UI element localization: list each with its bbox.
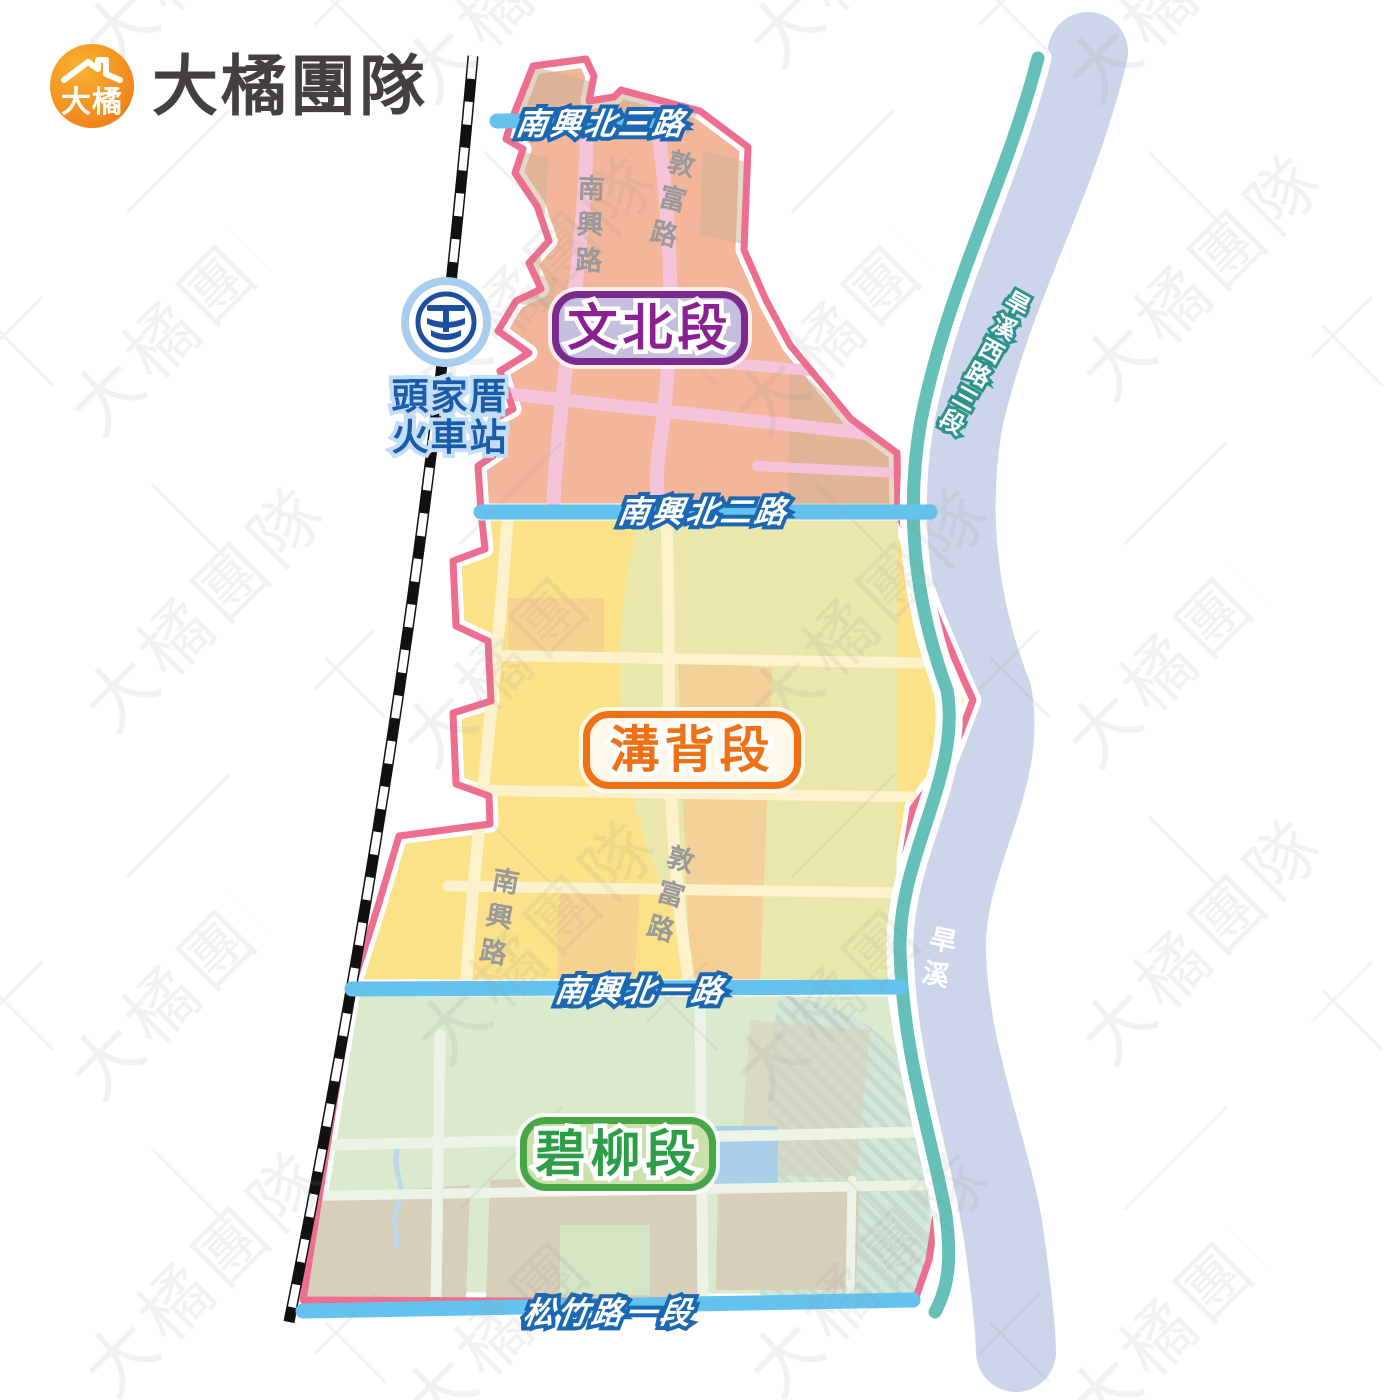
- street-label-nanxing-north: 南興路: [567, 173, 610, 282]
- watermark-layer: [0, 0, 1400, 1400]
- brand-team-name: 大橘團隊: [152, 53, 428, 119]
- section-badge-wenbei: 文北段文北段: [552, 291, 748, 365]
- brand-logo: 大橘 大橘團隊: [50, 44, 428, 128]
- section-label-biliu: 碧柳段碧柳段: [536, 1129, 701, 1179]
- section-badge-goubei: 溝背段溝背段: [583, 711, 801, 789]
- station-name-line2: 火車站火車站: [392, 407, 509, 461]
- map-page: 大橘團隊 大橘團隊: [0, 0, 1400, 1400]
- district-map: 大橘團隊 大橘團隊: [0, 0, 1400, 1400]
- road-label-nanxing-north-2: 南興北二路南興北二路: [616, 487, 792, 532]
- brand-badge-text: 大橘: [61, 88, 123, 118]
- road-label-nanxing-north-1: 南興北一路南興北一路: [553, 966, 729, 1011]
- house-roof-icon: [60, 54, 124, 84]
- section-badge-biliu: 碧柳段碧柳段: [520, 1117, 716, 1191]
- section-label-wenbei: 文北段文北段: [568, 303, 733, 353]
- train-station-icon: [400, 276, 492, 368]
- section-label-goubei: 溝背段溝背段: [610, 725, 775, 775]
- road-label-nanxing-north-3: 南興北三路南興北三路: [514, 99, 690, 144]
- brand-logo-badge: 大橘: [50, 44, 134, 128]
- road-label-songzhu-sec1: 松竹路一段松竹路一段: [521, 1288, 697, 1333]
